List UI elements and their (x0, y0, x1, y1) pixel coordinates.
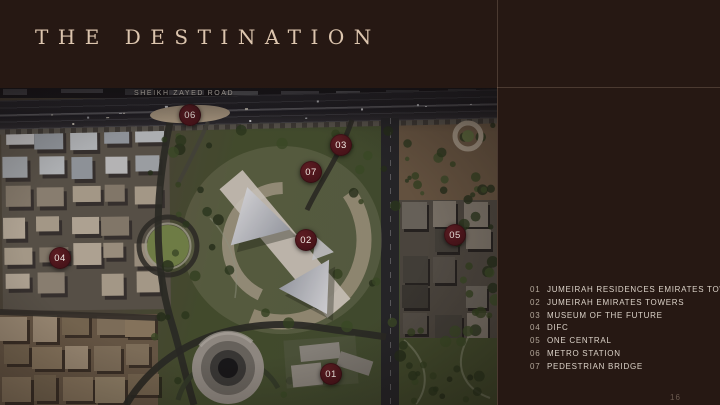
map-marker-06: 06 (179, 104, 201, 126)
map-marker-05: 05 (444, 224, 466, 246)
map-marker-07: 07 (300, 161, 322, 183)
map-vector-layer (0, 88, 497, 405)
horizontal-divider (497, 87, 720, 88)
legend-item: 01JUMEIRAH RESIDENCES EMIRATES TOWERS (530, 286, 720, 294)
map-marker-04: 04 (49, 247, 71, 269)
legend-item-number: 07 (530, 363, 547, 371)
legend-item: 04DIFC (530, 324, 720, 332)
legend-item: 06METRO STATION (530, 350, 720, 358)
legend-item-label: MUSEUM OF THE FUTURE (547, 312, 663, 320)
legend-list: 01JUMEIRAH RESIDENCES EMIRATES TOWERS02J… (530, 286, 720, 371)
legend-item-label: DIFC (547, 324, 568, 332)
legend-item: 07PEDESTRIAN BRIDGE (530, 363, 720, 371)
legend-item-number: 03 (530, 312, 547, 320)
legend-item-number: 06 (530, 350, 547, 358)
legend-item-number: 02 (530, 299, 547, 307)
legend-item-number: 05 (530, 337, 547, 345)
legend-item-label: JUMEIRAH RESIDENCES EMIRATES TOWERS (547, 286, 720, 294)
legend-item-label: PEDESTRIAN BRIDGE (547, 363, 643, 371)
slide: THE DESTINATION (0, 0, 720, 405)
map-marker-01: 01 (320, 363, 342, 385)
legend-item-label: JUMEIRAH EMIRATES TOWERS (547, 299, 684, 307)
legend-item-label: ONE CENTRAL (547, 337, 612, 345)
page-title: THE DESTINATION (35, 25, 381, 49)
legend-item-number: 04 (530, 324, 547, 332)
vertical-divider (497, 0, 498, 405)
map-marker-02: 02 (295, 229, 317, 251)
page-number: 16 (670, 393, 681, 402)
legend-item: 05ONE CENTRAL (530, 337, 720, 345)
legend-item-number: 01 (530, 286, 547, 294)
map-marker-03: 03 (330, 134, 352, 156)
road-label: SHEIKH ZAYED ROAD (134, 90, 234, 97)
legend-item: 03MUSEUM OF THE FUTURE (530, 312, 720, 320)
legend-item-label: METRO STATION (547, 350, 621, 358)
aerial-map: SHEIKH ZAYED ROAD 01020304050607 (0, 88, 497, 405)
legend-item: 02JUMEIRAH EMIRATES TOWERS (530, 299, 720, 307)
